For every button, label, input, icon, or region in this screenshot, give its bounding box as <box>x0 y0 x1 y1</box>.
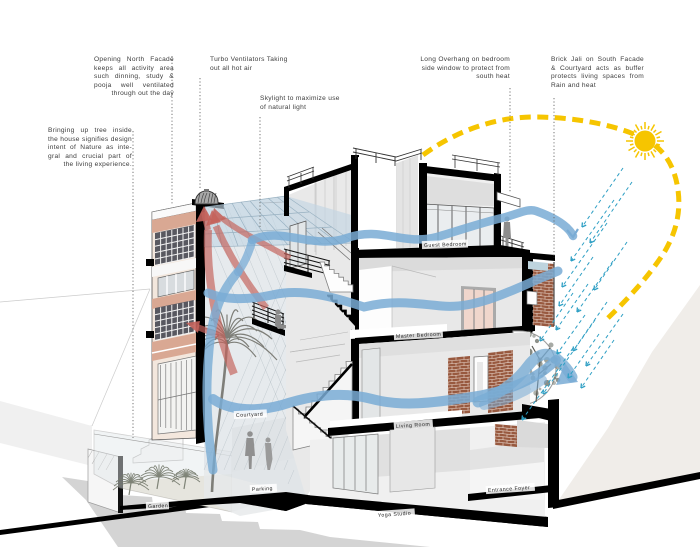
svg-text:Yoga Studio: Yoga Studio <box>378 511 412 519</box>
svg-text:Garden: Garden <box>148 503 169 510</box>
svg-text:Parking: Parking <box>252 486 273 493</box>
